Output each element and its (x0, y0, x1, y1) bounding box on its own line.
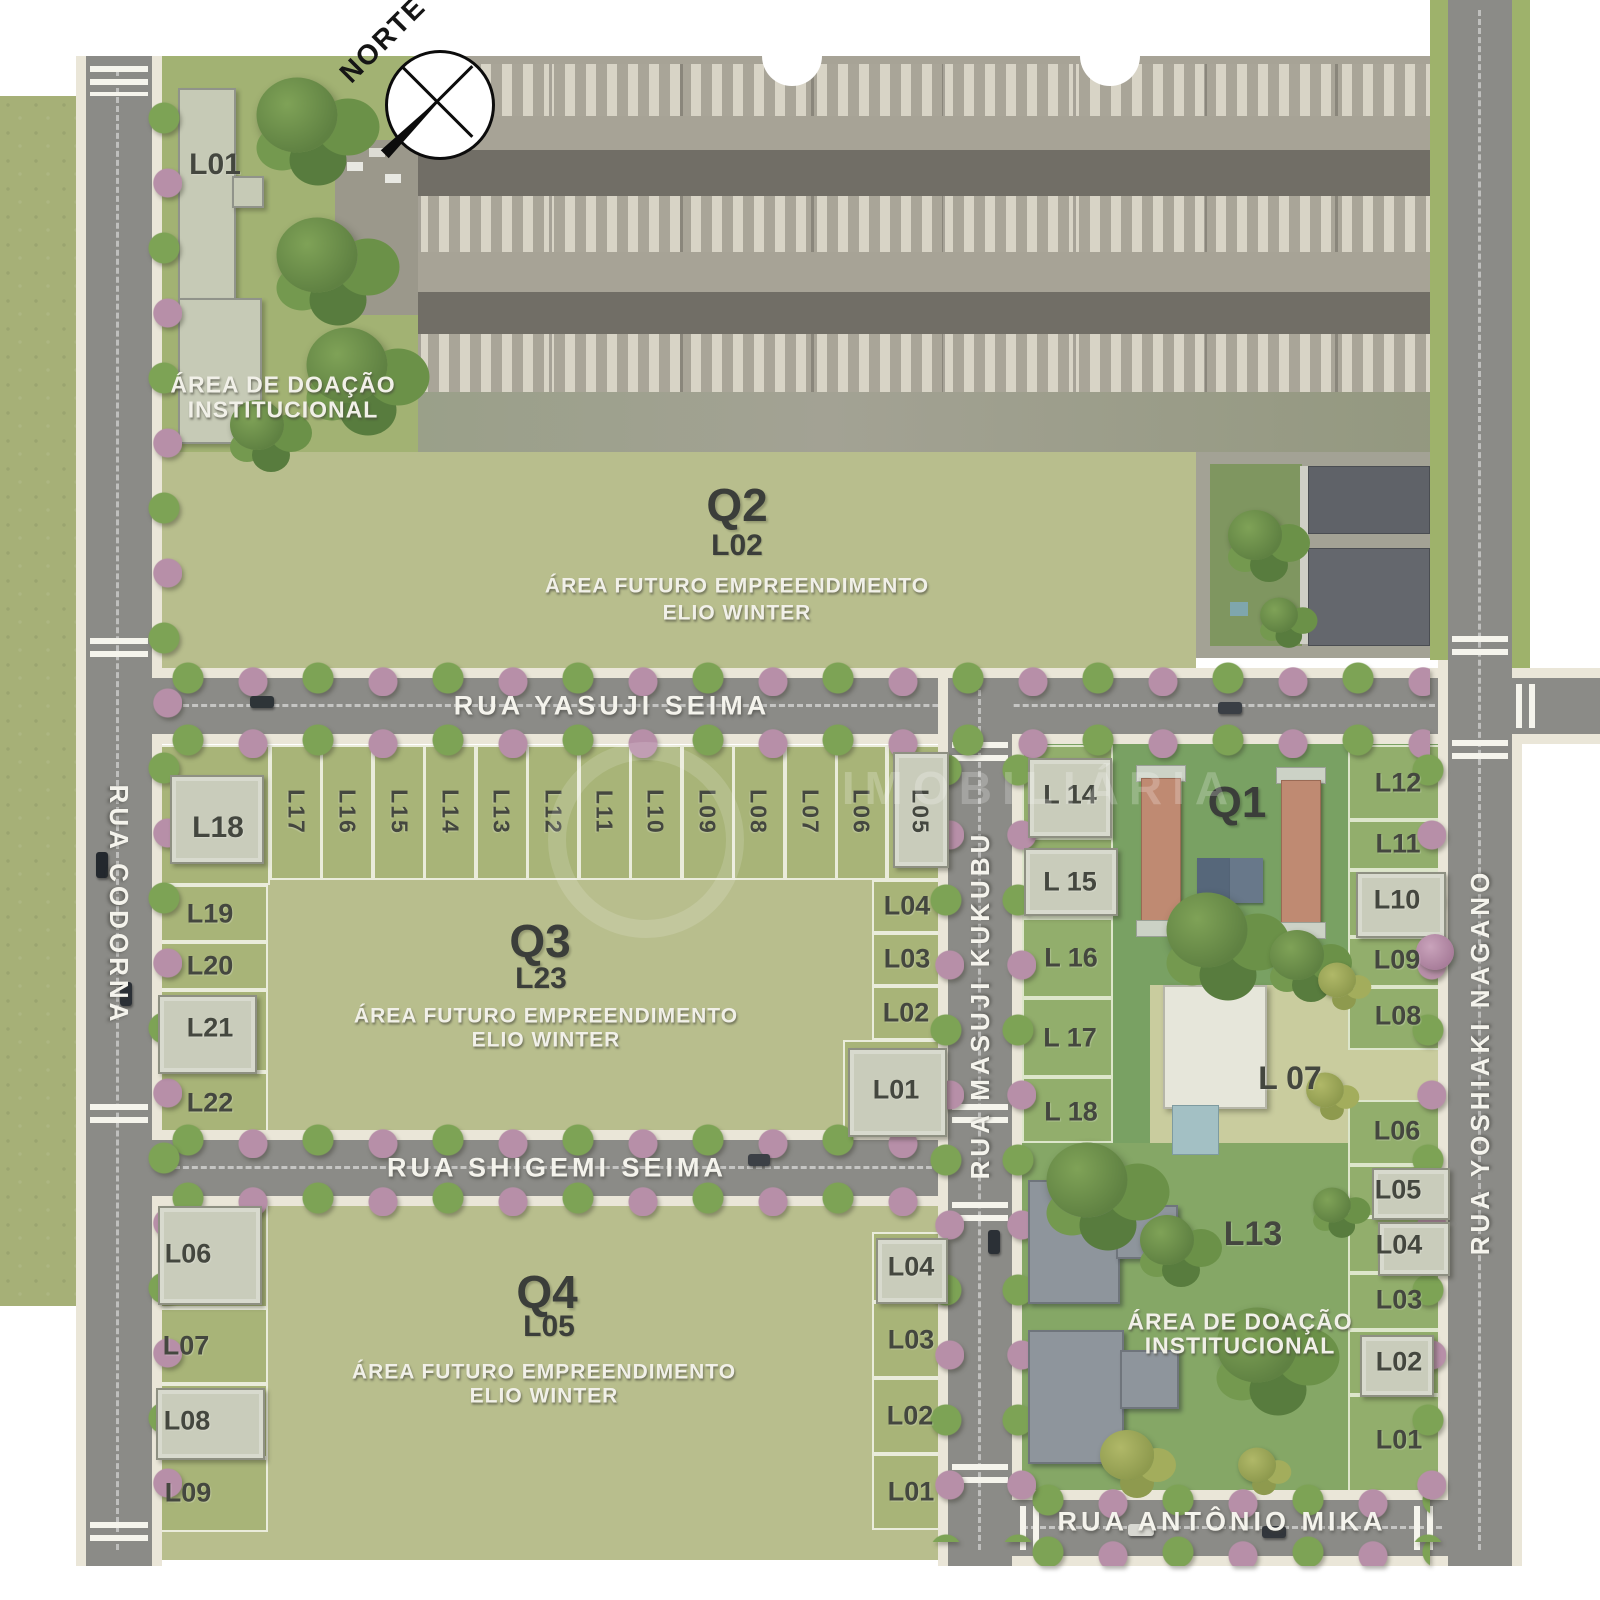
car (250, 696, 274, 708)
street-trees (1030, 1534, 1430, 1566)
crosswalk (1452, 636, 1508, 662)
future-note-line2: ELIO WINTER (663, 603, 812, 624)
institutional-building (1120, 1350, 1179, 1409)
street-trees (1410, 752, 1446, 1542)
street-trees (170, 722, 1430, 758)
crosswalk (1452, 740, 1508, 766)
lot-label: L20 (187, 953, 234, 980)
crosswalk (90, 66, 148, 96)
lot-label: L12 (1375, 770, 1422, 797)
block-q2 (152, 452, 1196, 678)
lot-label: L09 (1374, 947, 1421, 974)
lot-label: L 16 (1044, 945, 1098, 972)
lot-label: L17 (285, 789, 308, 835)
lot-label: L01 (873, 1077, 920, 1104)
lot-label: L21 (187, 1015, 234, 1042)
future-note-line2: ELIO WINTER (470, 1386, 619, 1407)
donation-note-line2: INSTITUCIONAL (188, 399, 379, 422)
lot-label: L02 (883, 1000, 930, 1027)
lot-label: L10 (1374, 887, 1421, 914)
lot-label: L01 (1376, 1427, 1423, 1454)
tree-cluster (277, 218, 358, 293)
sidewalk (1512, 744, 1522, 1566)
lot-label: L16 (336, 789, 359, 835)
lot-label: L03 (888, 1327, 935, 1354)
lot-label: L05 (1375, 1177, 1422, 1204)
cul-de-sac-notch (762, 26, 822, 86)
lot-label: L19 (187, 901, 234, 928)
site-plan-map: L01 ÁREA DE DOAÇÃO INSTITUCIONAL Q2 L02 … (0, 0, 1600, 1600)
tree-cluster (1047, 1143, 1128, 1218)
crosswalk (90, 1522, 148, 1548)
street-trees (170, 1180, 930, 1216)
block-lot-q2: L02 (711, 531, 763, 561)
block-label-q2: Q2 (706, 482, 767, 528)
lot-label-nw-l01: L01 (189, 150, 241, 180)
pool (1172, 1105, 1219, 1155)
lot-label: L04 (1376, 1232, 1423, 1259)
tree-cluster (1100, 1430, 1154, 1480)
lot-label: L 15 (1043, 869, 1097, 896)
future-note-line1: ÁREA FUTURO EMPREENDIMENTO (545, 576, 929, 597)
lot-label: L03 (884, 946, 931, 973)
verge (1430, 0, 1448, 660)
lot-label: L03 (1376, 1287, 1423, 1314)
aerial-photo (418, 56, 1440, 452)
model-house (1163, 985, 1267, 1109)
lot-label: L01 (888, 1479, 935, 1506)
aerial-photo-block (1196, 452, 1440, 658)
lot-label: L04 (888, 1254, 935, 1281)
car (1218, 702, 1242, 714)
tree-cluster (1260, 598, 1298, 633)
cul-de-sac-notch (1080, 26, 1140, 86)
verge (1512, 0, 1530, 668)
street-trees (170, 660, 1430, 696)
lot-label: L 18 (1044, 1099, 1098, 1126)
lot-label: L06 (165, 1241, 212, 1268)
block-lot-q4: L05 (523, 1312, 575, 1342)
tree-cluster (1167, 893, 1248, 968)
block-label-q3: Q3 (509, 918, 570, 964)
block-label-q4: Q4 (516, 1269, 577, 1315)
tree-cluster (257, 78, 338, 153)
lot-label: L04 (884, 893, 931, 920)
future-note-line2: ELIO WINTER (472, 1030, 621, 1051)
watermark-ring (548, 742, 744, 938)
tree-cluster (1313, 1188, 1351, 1223)
tree-cluster (1270, 930, 1324, 980)
lot-label: L22 (187, 1090, 234, 1117)
lot-label: L08 (164, 1408, 211, 1435)
lot-label: L07 (799, 789, 822, 835)
tree-cluster (1416, 934, 1454, 970)
lot-label: L13 (490, 789, 513, 835)
street-label-rua-codorna: RUA CODORNA (106, 785, 132, 1026)
lot-label: L11 (1375, 831, 1420, 858)
condo-building (178, 88, 236, 302)
lot-label-l13: L13 (1224, 1217, 1283, 1251)
lot-label: L08 (1375, 1003, 1422, 1030)
street-label-rua-yasuji-seima: RUA YASUJI SEIMA (454, 693, 771, 720)
crosswalk (90, 1104, 148, 1130)
tree-cluster (1228, 510, 1282, 560)
lot-label: L02 (887, 1403, 934, 1430)
donation-note-line1: ÁREA DE DOAÇÃO (1127, 1311, 1352, 1334)
lot-label: L02 (1376, 1349, 1423, 1376)
crosswalk (90, 638, 148, 664)
lot-label: L 17 (1043, 1025, 1097, 1052)
sidewalk (76, 56, 86, 1566)
street-label-rua-masuji-kukubu: RUA MASUJI KUKUBU (967, 831, 993, 1180)
street-label-rua-antonio-mika: RUA ANTÔNIO MIKA (1058, 1509, 1387, 1536)
street-label-rua-shigemi-seima: RUA SHIGEMI SEIMA (387, 1155, 727, 1182)
tree-cluster (1140, 1215, 1194, 1265)
future-note-line1: ÁREA FUTURO EMPREENDIMENTO (352, 1362, 736, 1383)
street-label-rua-yoshiaki-nagano: RUA YOSHIAKI NAGANO (1467, 869, 1493, 1256)
lot-label: L14 (439, 789, 462, 835)
crosswalk (1516, 684, 1542, 728)
apartment-building (1281, 780, 1321, 925)
tree-cluster (1318, 963, 1356, 998)
lot-label-l07: L 07 (1258, 1062, 1321, 1094)
watermark-text: IMOBILIÁRIA (842, 765, 1238, 811)
left-field (0, 96, 86, 1306)
aerial-photo-parking (335, 140, 418, 315)
lot-label: L08 (747, 789, 770, 835)
lot-label: L09 (165, 1480, 212, 1507)
lot-label: L18 (192, 813, 244, 843)
future-note-line1: ÁREA FUTURO EMPREENDIMENTO (354, 1006, 738, 1027)
block-lot-q3: L23 (515, 964, 567, 994)
car (748, 1154, 770, 1166)
lot-label: L06 (1374, 1118, 1421, 1145)
donation-note-line2: INSTITUCIONAL (1145, 1335, 1336, 1358)
amenity-deck (1230, 858, 1263, 903)
lot-label: L07 (163, 1333, 210, 1360)
car (988, 1230, 1000, 1254)
donation-note-line1: ÁREA DE DOAÇÃO (170, 374, 395, 397)
lot-label: L15 (388, 789, 411, 835)
tree-cluster (1238, 1448, 1276, 1483)
